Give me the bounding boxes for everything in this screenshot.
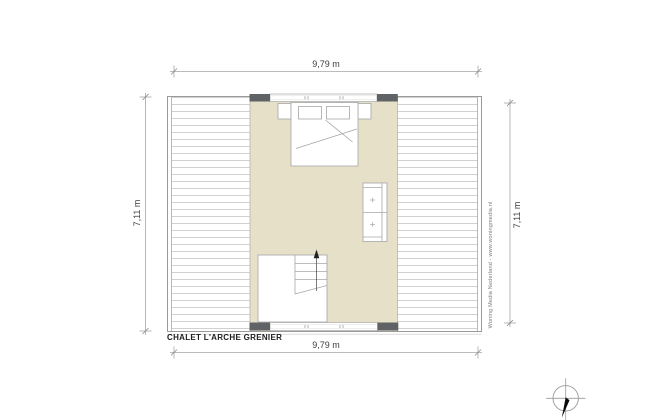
nightstand-right (358, 104, 371, 120)
double-bed (278, 103, 371, 167)
wall-segment-bottom-left (250, 323, 271, 331)
watermark-text: Woning Media Nederland - www.woningmedia… (488, 202, 494, 329)
wall-segment-top-left (250, 94, 271, 102)
attic-floor-hatch-left (172, 97, 250, 331)
wall-window-band-bottom (250, 323, 399, 331)
attic-floor-hatch-right (398, 97, 478, 331)
dimension-label-right: 7,11 m (512, 202, 522, 229)
nightstand-left (278, 104, 291, 120)
two-seat-sofa (363, 183, 387, 242)
dimension-label-top: 9,79 m (312, 59, 340, 69)
staircase (258, 250, 327, 323)
floorplan-page: 9,79 m 9,79 m 7,11 m 7,11 m CHALET L'ARC… (0, 0, 650, 420)
pillow-right (327, 107, 350, 120)
wall-segment-top-right (377, 94, 398, 102)
pillow-left (299, 107, 322, 120)
dimension-label-left: 7,11 m (132, 200, 142, 227)
compass-north-icon (546, 378, 586, 420)
plan-title: CHALET L'ARCHE GRENIER (167, 333, 282, 342)
wall-segment-bottom-right (378, 323, 399, 331)
dimension-label-bottom: 9,79 m (312, 340, 340, 350)
window-band-bottom (270, 323, 378, 331)
window-band-top (270, 94, 377, 102)
wall-window-band-top (250, 94, 398, 102)
